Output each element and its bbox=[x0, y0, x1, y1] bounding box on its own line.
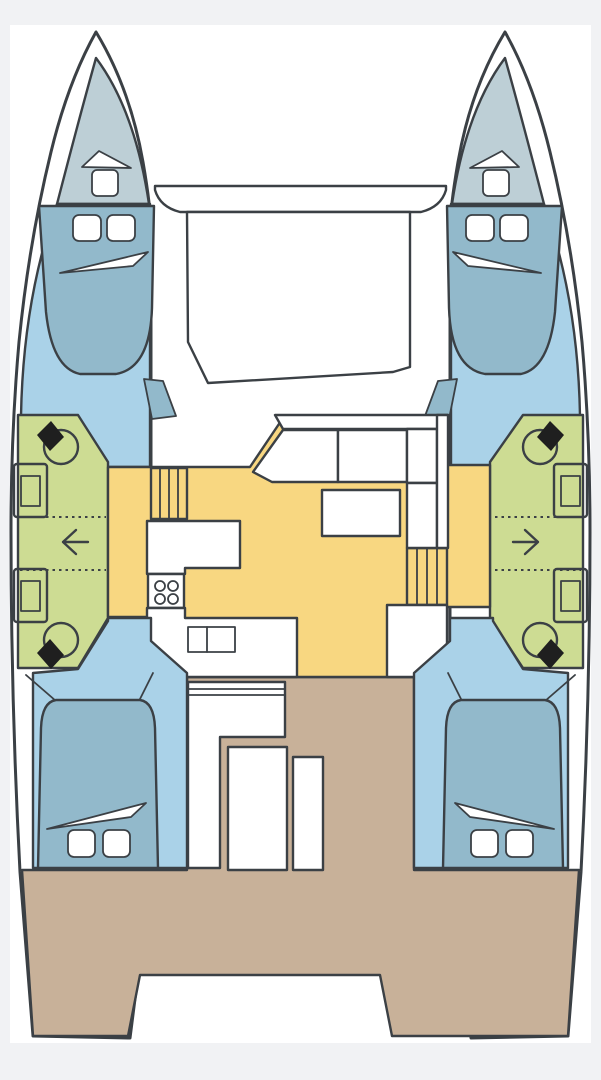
port-forward-hatch-1 bbox=[73, 215, 101, 241]
starboard-forward-hatch-2 bbox=[500, 215, 528, 241]
port-aft-hatch-1 bbox=[68, 830, 95, 857]
starboard-forward-hatch-1 bbox=[466, 215, 494, 241]
settee-center-segment bbox=[338, 430, 407, 482]
port-forward-hatch-2 bbox=[107, 215, 135, 241]
starboard-aft-berth bbox=[443, 700, 563, 868]
settee-right-lower bbox=[407, 483, 437, 548]
port-aft-hatch-2 bbox=[103, 830, 130, 857]
cockpit-bench bbox=[293, 757, 323, 870]
starboard-aft-hatch-2 bbox=[506, 830, 533, 857]
galley-counter-forward bbox=[147, 521, 240, 574]
galley-sink bbox=[188, 627, 235, 652]
saloon-side-ledge bbox=[437, 415, 448, 548]
floorplan-svg bbox=[0, 0, 601, 1080]
saloon-front-band bbox=[275, 415, 448, 429]
saloon-table bbox=[322, 490, 400, 536]
galley-stove bbox=[148, 574, 184, 608]
settee-right-upper bbox=[407, 429, 437, 483]
foredeck-trampoline bbox=[187, 212, 410, 383]
port-aft-berth bbox=[38, 700, 158, 868]
forward-crossbeam bbox=[155, 186, 446, 212]
port-forepeak-hatch bbox=[92, 170, 118, 196]
starboard-aft-hatch-1 bbox=[471, 830, 498, 857]
catamaran-floorplan-page bbox=[0, 0, 601, 1080]
starboard-forepeak-hatch bbox=[483, 170, 509, 196]
cockpit-table bbox=[228, 747, 287, 870]
